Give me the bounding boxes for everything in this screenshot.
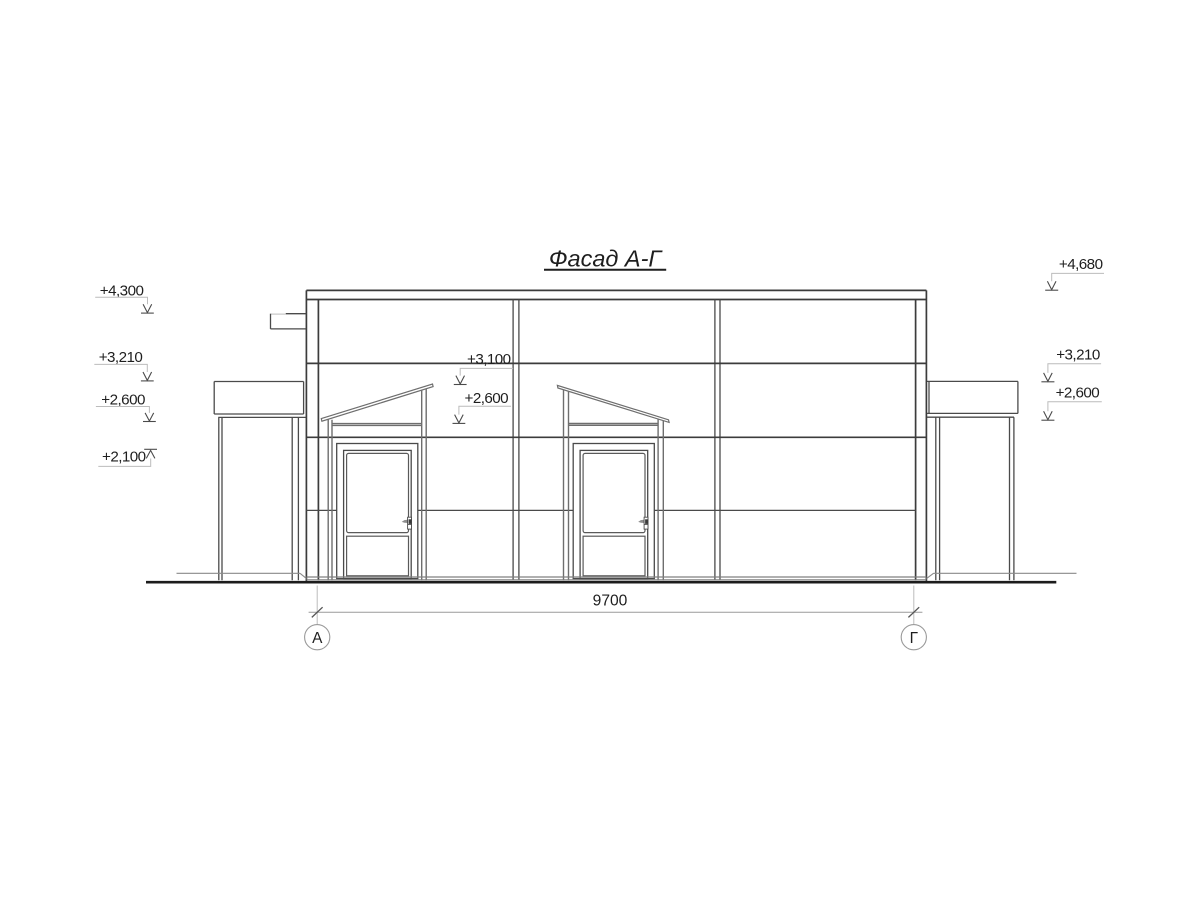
svg-text:+3,210: +3,210 [1056, 346, 1100, 363]
svg-text:+4,300: +4,300 [100, 282, 144, 299]
svg-text:9700: 9700 [593, 592, 628, 609]
svg-text:+2,600: +2,600 [1056, 385, 1100, 402]
svg-text:А: А [312, 630, 323, 647]
svg-text:Г: Г [910, 630, 919, 647]
svg-text:+2,600: +2,600 [101, 391, 145, 408]
svg-text:+3,210: +3,210 [99, 349, 143, 366]
svg-text:+2,600: +2,600 [465, 390, 509, 407]
svg-text:Фасад А-Г: Фасад А-Г [549, 246, 664, 272]
svg-text:+4,680: +4,680 [1059, 256, 1103, 273]
svg-text:+2,100: +2,100 [102, 448, 146, 465]
svg-text:+3,100: +3,100 [467, 351, 511, 368]
